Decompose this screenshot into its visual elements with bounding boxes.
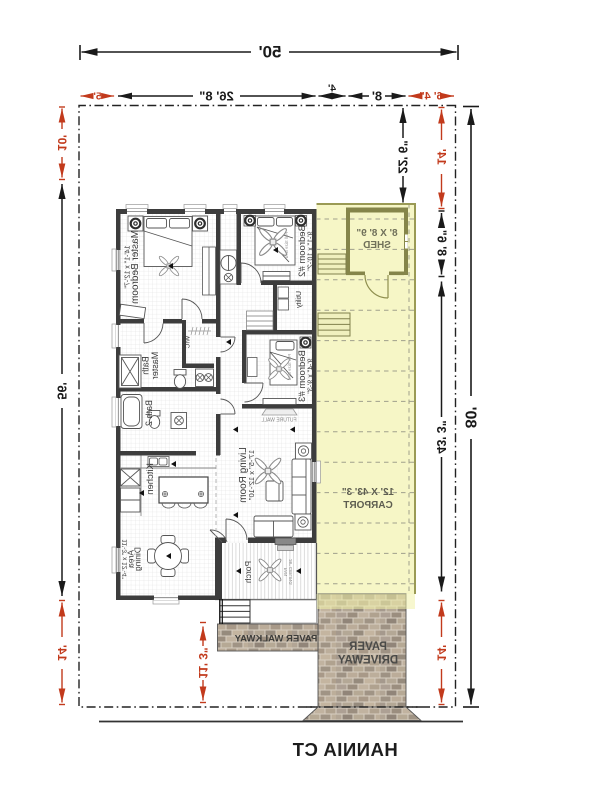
- svg-text:WIC: WIC: [185, 336, 192, 349]
- svg-text:56': 56': [55, 382, 70, 400]
- svg-text:CARPORT: CARPORT: [343, 500, 392, 511]
- svg-text:Porch: Porch: [243, 561, 253, 583]
- svg-text:PAVER WALKWAY: PAVER WALKWAY: [234, 634, 317, 645]
- svg-text:50': 50': [259, 43, 282, 62]
- svg-text:14': 14': [55, 645, 69, 661]
- svg-text:14': 14': [435, 645, 449, 661]
- svg-text:10': 10': [55, 135, 69, 151]
- svg-text:5': 5': [94, 92, 102, 103]
- svg-text:80': 80': [462, 407, 479, 429]
- svg-text:11' 3": 11' 3": [196, 647, 210, 678]
- svg-text:9'-4" x 9'-3": 9'-4" x 9'-3": [308, 358, 315, 394]
- svg-text:Kitchen: Kitchen: [145, 463, 156, 495]
- svg-text:PAVER: PAVER: [348, 641, 387, 653]
- svg-text:9'-1" x 10'-2": 9'-1" x 10'-2": [308, 231, 315, 271]
- svg-text:43' 3": 43' 3": [434, 420, 448, 453]
- svg-text:Utility: Utility: [296, 291, 303, 309]
- svg-text:HANNIA CT: HANNIA CT: [292, 739, 398, 760]
- svg-text:22' 6": 22' 6": [396, 140, 410, 173]
- svg-text:12' X 43' 3": 12' X 43' 3": [342, 487, 395, 498]
- svg-text:DRIVEWAY: DRIVEWAY: [338, 655, 399, 667]
- svg-text:8': 8': [372, 89, 382, 104]
- svg-text:8' 6": 8' 6": [435, 230, 449, 256]
- svg-text:26' 8": 26' 8": [199, 89, 234, 104]
- svg-text:14': 14': [435, 149, 449, 165]
- svg-text:8' X 8' 9": 8' X 8' 9": [356, 228, 397, 239]
- svg-text:Master: Master: [150, 352, 160, 380]
- svg-text:Bath: Bath: [141, 356, 151, 375]
- svg-text:4': 4': [328, 84, 336, 95]
- svg-text:FAN: FAN: [283, 568, 288, 577]
- svg-text:Bedroom #3: Bedroom #3: [297, 350, 308, 402]
- svg-text:Bedroom #2: Bedroom #2: [297, 225, 308, 277]
- svg-text:Bath 2: Bath 2: [144, 400, 154, 426]
- svg-text:11'-3" x 12'-4": 11'-3" x 12'-4": [122, 539, 129, 579]
- svg-text:17'-5" x 12'-10": 17'-5" x 12'-10": [247, 450, 256, 501]
- svg-text:SHED: SHED: [363, 240, 391, 251]
- svg-text:14'-1" x 12'-7": 14'-1" x 12'-7": [125, 245, 132, 289]
- svg-text:Master Bedroom: Master Bedroom: [130, 230, 141, 304]
- svg-text:6' 4": 6' 4": [419, 91, 442, 103]
- svg-text:36" CEILING: 36" CEILING: [288, 559, 293, 585]
- svg-text:FUTURE WALL: FUTURE WALL: [261, 418, 296, 424]
